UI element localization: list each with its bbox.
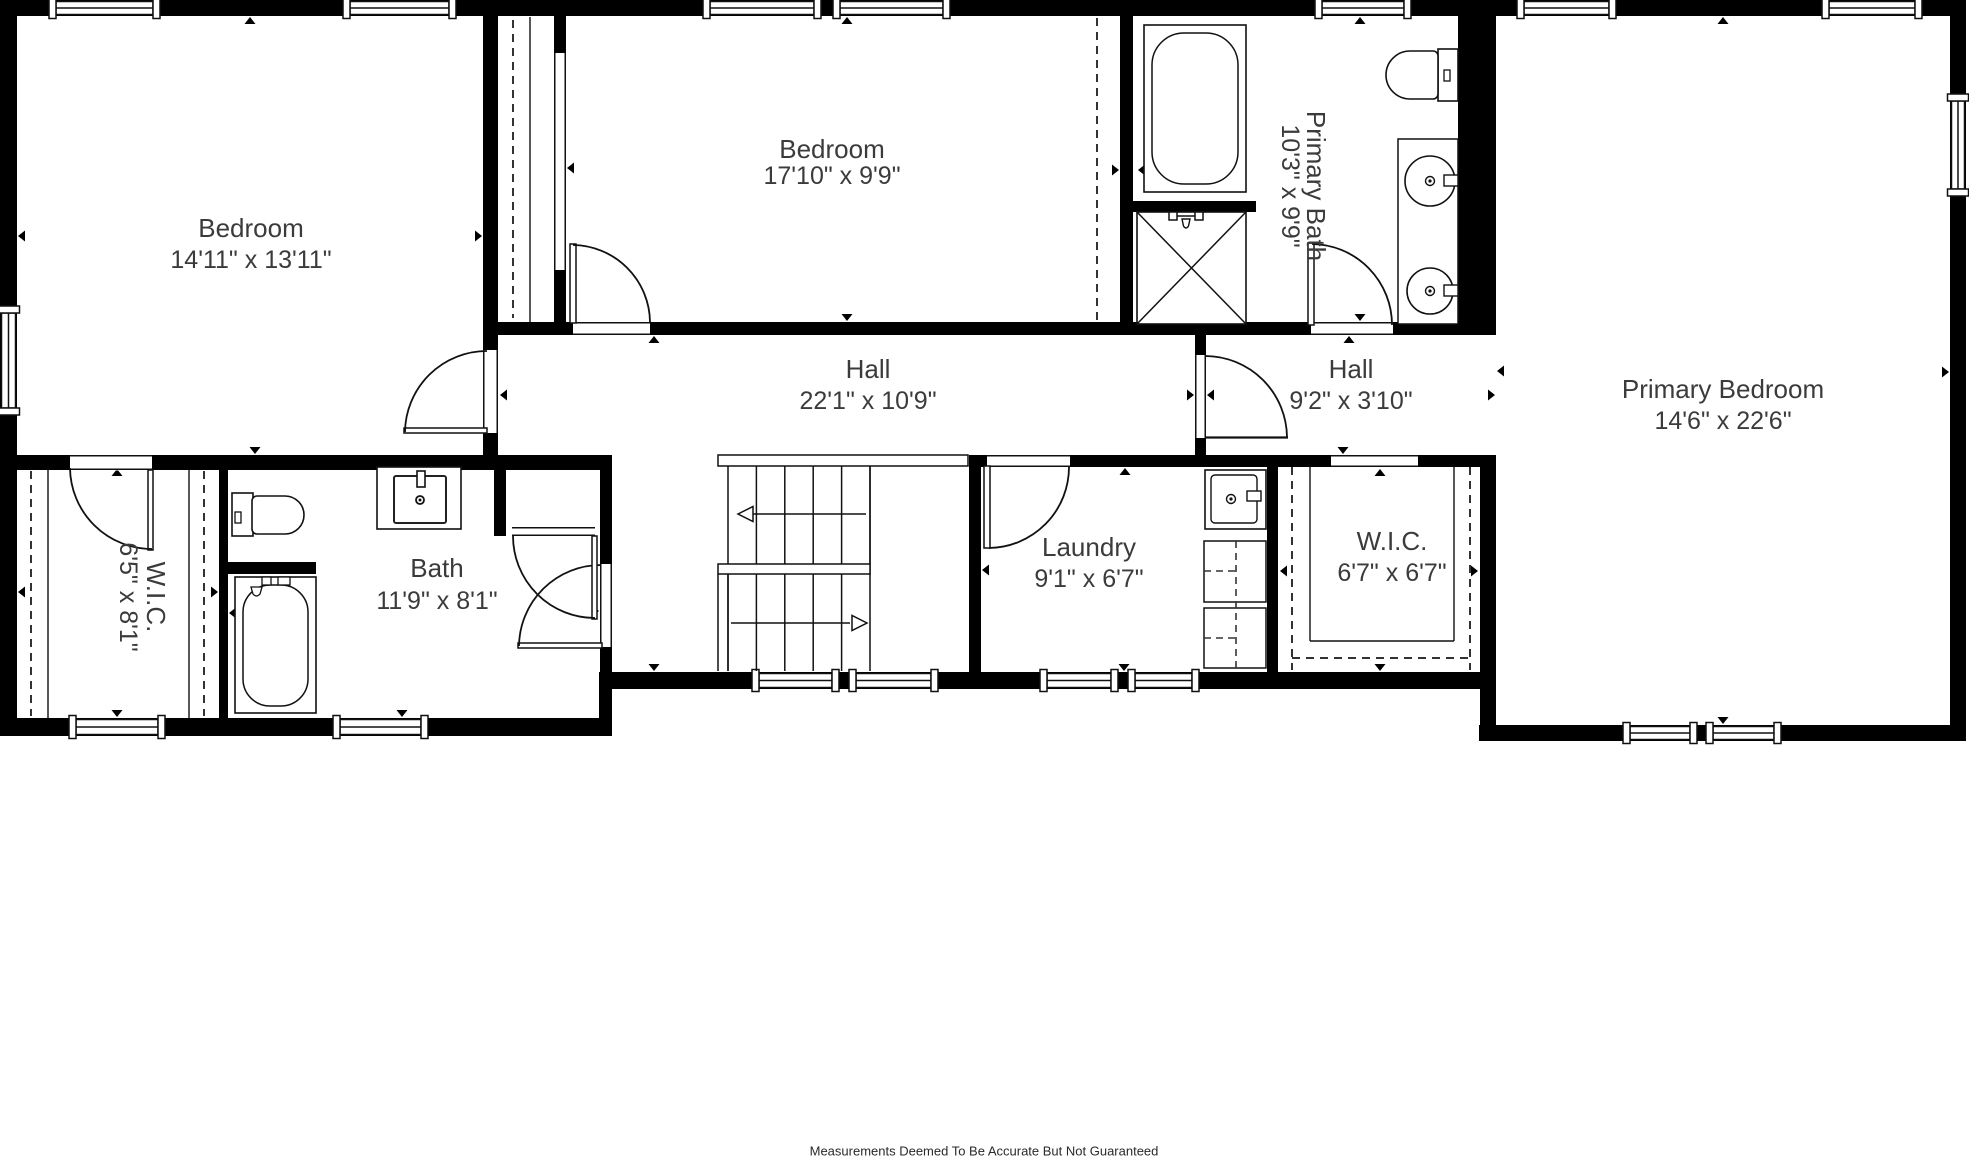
svg-text:14'11" x 13'11": 14'11" x 13'11" (170, 246, 331, 274)
svg-text:Laundry: Laundry (1042, 532, 1136, 562)
svg-text:Primary Bath: Primary Bath (1301, 111, 1331, 261)
svg-text:17'10" x 9'9": 17'10" x 9'9" (763, 162, 900, 190)
svg-text:9'2" x 3'10": 9'2" x 3'10" (1289, 387, 1412, 415)
svg-text:Bath: Bath (410, 553, 464, 583)
svg-text:6'5" x 8'1": 6'5" x 8'1" (114, 542, 142, 651)
svg-text:Bedroom: Bedroom (198, 213, 304, 243)
svg-text:11'9" x 8'1": 11'9" x 8'1" (376, 587, 497, 615)
svg-text:Bedroom: Bedroom (779, 134, 885, 164)
svg-text:Hall: Hall (1329, 354, 1374, 384)
svg-text:14'6" x 22'6": 14'6" x 22'6" (1654, 407, 1791, 435)
svg-text:6'7" x 6'7": 6'7" x 6'7" (1337, 559, 1446, 587)
svg-text:Primary Bedroom: Primary Bedroom (1622, 374, 1824, 404)
svg-text:10'3" x 9'9": 10'3" x 9'9" (1276, 124, 1304, 247)
svg-text:Measurements Deemed To Be Accu: Measurements Deemed To Be Accurate But N… (810, 1144, 1159, 1159)
svg-text:22'1" x 10'9": 22'1" x 10'9" (799, 387, 936, 415)
svg-text:9'1" x 6'7": 9'1" x 6'7" (1034, 565, 1143, 593)
svg-text:W.I.C.: W.I.C. (1357, 526, 1428, 556)
svg-text:W.I.C.: W.I.C. (141, 562, 171, 633)
svg-text:Hall: Hall (846, 354, 891, 384)
